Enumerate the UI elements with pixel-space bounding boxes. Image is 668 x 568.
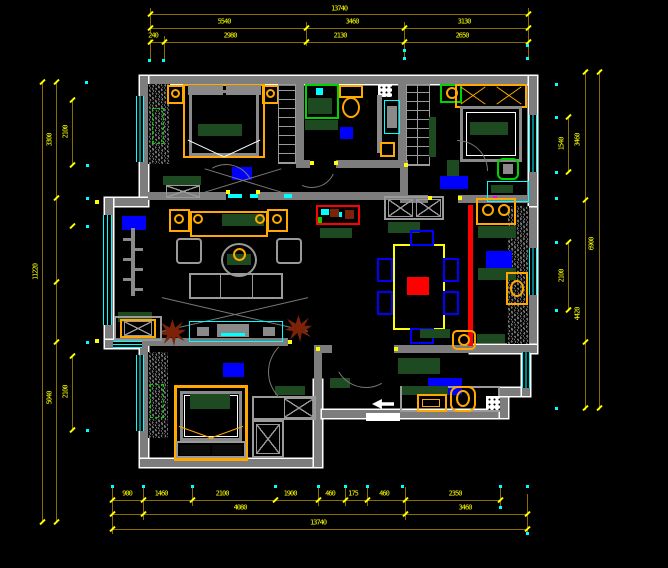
dining-chair — [377, 291, 393, 315]
dimension-line — [585, 70, 586, 410]
br1-bench-top — [163, 176, 201, 185]
door-hinge — [95, 339, 99, 343]
witness-dot — [142, 485, 145, 488]
witness-dot — [86, 197, 89, 200]
tv-speaker — [263, 327, 275, 336]
dimension-label: 3460 — [575, 133, 582, 148]
kitchen-counter — [478, 226, 516, 238]
witness-dot — [317, 485, 320, 488]
aquarium-rock — [345, 210, 354, 219]
dimension-label: 1460 — [154, 491, 169, 498]
door-hinge — [226, 190, 230, 194]
washer-x — [124, 321, 152, 336]
dimension-label: 900 — [121, 491, 133, 498]
witness-dot — [86, 164, 89, 167]
dining-table-runner — [407, 277, 429, 295]
footboard-panel — [180, 445, 210, 455]
witness-dot — [86, 341, 89, 344]
coffee-table-flower — [233, 248, 246, 261]
aquarium-plant — [318, 217, 322, 223]
br2-wardrobe-rail — [417, 84, 418, 166]
desk-paper — [486, 396, 500, 410]
dimension-label: 11220 — [33, 263, 40, 281]
dimension-label: 3460 — [458, 505, 473, 512]
door-hinge — [95, 200, 99, 204]
witness-dot — [162, 59, 165, 62]
plant-stand-arm — [123, 238, 132, 241]
dimension-line — [599, 70, 600, 410]
dimension-tick — [53, 519, 59, 525]
bath-counter — [305, 120, 338, 130]
console-divider — [252, 273, 253, 299]
dimension-label: 1540 — [559, 137, 566, 152]
witness-dot — [526, 57, 529, 60]
plant-stand-arm — [134, 248, 143, 251]
dimension-tick — [69, 427, 75, 433]
dimension-line — [56, 82, 57, 522]
sofa-arm-curl — [255, 214, 265, 224]
witness-dot — [526, 44, 529, 47]
dimension-tick — [69, 162, 75, 168]
dimension-line — [568, 242, 569, 310]
witness-dot — [555, 309, 558, 312]
witness-dot — [555, 171, 558, 174]
dining-chair — [410, 230, 434, 246]
dimension-line — [528, 8, 529, 60]
dimension-label: 5040 — [47, 391, 54, 406]
window-br1-west — [136, 96, 144, 162]
scale-bar — [366, 413, 400, 421]
witness-dot — [403, 57, 406, 60]
dimension-line — [150, 14, 528, 15]
table-lamp — [174, 214, 184, 224]
witness-dot — [86, 429, 89, 432]
dimension-line — [72, 356, 73, 430]
br2-bed-canopy — [455, 84, 527, 108]
cabinet-door-x — [388, 199, 413, 217]
pointer-icon — [372, 399, 394, 409]
hall-cabinet — [380, 142, 395, 157]
dimension-line — [150, 28, 528, 29]
dimension-label: 460 — [324, 491, 336, 498]
br1-lamp-right — [266, 89, 275, 98]
door-hinge — [394, 347, 398, 351]
aquarium-rock — [330, 209, 339, 217]
door-hinge — [288, 340, 292, 344]
plant-stand-arm — [134, 268, 143, 271]
dimension-tick — [596, 405, 602, 411]
dimension-tick — [565, 307, 571, 313]
plant-stand-arm — [123, 258, 132, 261]
dimension-label: 4420 — [575, 307, 582, 322]
kitchen-shelf — [477, 334, 505, 343]
wall-bath-south-east — [336, 160, 406, 168]
witness-dot — [555, 241, 558, 244]
dimension-tick — [39, 519, 45, 525]
dimension-label: 3460 — [345, 19, 360, 26]
br1-headboard-right — [226, 85, 261, 95]
dimension-line — [150, 42, 528, 43]
sofa-arm-curl — [193, 214, 203, 224]
br1-decor-squiggle — [152, 108, 164, 144]
br1-lamp-left — [171, 89, 180, 98]
witness-dot — [148, 59, 151, 62]
dimension-tick — [582, 405, 588, 411]
threshold — [284, 194, 292, 198]
br3-pillow — [190, 394, 230, 409]
stool-seat — [458, 334, 470, 346]
witness-dot — [555, 116, 558, 119]
door-swing — [268, 336, 340, 408]
door-hinge — [256, 190, 260, 194]
br3-rug — [223, 363, 244, 377]
witness-dot — [555, 83, 558, 86]
witness-dot — [403, 49, 406, 52]
br1-bench — [166, 185, 200, 198]
window-kitchen-east — [529, 248, 537, 295]
witness-dot — [111, 485, 114, 488]
dimension-label: 2130 — [333, 33, 348, 40]
br1-headboard-left — [188, 85, 223, 95]
dimension-label: 2100 — [559, 269, 566, 284]
burner — [498, 204, 510, 216]
window-balcony-south — [113, 341, 142, 348]
dimension-label: 5540 — [217, 19, 232, 26]
witness-dot — [555, 407, 558, 410]
dimension-label: 175 — [347, 491, 359, 498]
witness-dot — [366, 485, 369, 488]
dimension-tick — [565, 169, 571, 175]
tv-speaker — [197, 327, 209, 336]
window-study-east — [522, 352, 530, 388]
window-br2-east — [529, 115, 537, 172]
plant-stand-arm — [123, 278, 132, 281]
witness-dot — [526, 485, 529, 488]
dimension-line — [42, 82, 43, 522]
witness-dot — [86, 225, 89, 228]
aquarium-water — [321, 209, 329, 215]
dimension-label: 2980 — [223, 33, 238, 40]
window-bay-west — [103, 215, 112, 325]
witness-dot — [274, 485, 277, 488]
armchair-right — [276, 238, 302, 264]
dimension-label: 2100 — [63, 125, 70, 140]
br2-chair-seat — [503, 164, 513, 174]
dining-chair — [443, 258, 459, 282]
kitchen-rug — [486, 251, 512, 268]
door-hinge — [404, 163, 408, 167]
dimension-label: 3300 — [47, 133, 54, 148]
door-hinge — [428, 196, 432, 200]
br3-decor-squiggle — [150, 384, 164, 418]
dining-chair — [377, 258, 393, 282]
sink-basin — [510, 280, 524, 297]
witness-dot — [85, 81, 88, 84]
dimension-label: 13740 — [330, 6, 348, 13]
window-br3-west — [136, 355, 144, 431]
plant-stand-arm — [134, 288, 143, 291]
desk-drawer-inner — [422, 399, 440, 407]
witness-dot — [401, 485, 404, 488]
door-hinge — [316, 347, 320, 351]
wall-north — [140, 76, 537, 84]
dimension-line — [568, 117, 569, 172]
dimension-label: 4080 — [233, 505, 248, 512]
dimension-tick — [69, 223, 75, 229]
dimension-label: 460 — [378, 491, 390, 498]
console-divider — [220, 273, 221, 299]
kitchen-sliding-door — [468, 205, 473, 346]
dimension-label: 3130 — [457, 19, 472, 26]
br1-pillow — [198, 124, 242, 136]
witness-dot — [499, 485, 502, 488]
br2-wardrobe — [406, 84, 430, 166]
console-table — [189, 273, 283, 299]
door-hinge — [310, 161, 314, 165]
footboard-panel — [212, 445, 242, 455]
dimension-label: 13740 — [309, 520, 327, 527]
washbasin-bowl — [387, 106, 397, 128]
dimension-label: 240 — [147, 33, 159, 40]
kitchen-shelf — [420, 329, 450, 338]
shower-bench — [308, 98, 332, 114]
dimension-label: 2650 — [455, 33, 470, 40]
witness-dot — [499, 506, 502, 509]
wardrobe-x — [256, 424, 280, 454]
dimension-label: 1900 — [283, 491, 298, 498]
armchair-left — [176, 238, 202, 264]
burner — [482, 204, 494, 216]
bath-mat — [340, 127, 353, 139]
witness-dot — [191, 485, 194, 488]
dining-chair — [443, 291, 459, 315]
shower-head — [316, 88, 323, 95]
br2-pillow — [470, 122, 508, 135]
toilet-bowl — [342, 97, 360, 118]
dimension-line — [72, 100, 73, 165]
dimension-label: 2100 — [215, 491, 230, 498]
study-chair-back — [456, 390, 470, 407]
br2-desk-items — [491, 185, 513, 193]
table-lamp — [272, 214, 282, 224]
tv-screen — [221, 333, 245, 336]
dimension-line — [112, 500, 500, 501]
cabinet-door-x — [416, 199, 441, 217]
door-hinge — [334, 161, 338, 165]
witness-dot — [344, 485, 347, 488]
witness-dot — [555, 197, 558, 200]
dimension-label: 6900 — [589, 237, 596, 252]
witness-dot — [526, 532, 529, 535]
dimension-line — [112, 514, 527, 515]
dimension-line — [112, 529, 527, 530]
door-hinge — [458, 196, 462, 200]
cad-canvas[interactable]: 1374055403460313024029802130265033002100… — [0, 0, 668, 568]
study-shelf — [398, 358, 440, 374]
dimension-label: 2100 — [63, 385, 70, 400]
shoe-bench — [320, 228, 352, 238]
dimension-label: 2350 — [448, 491, 463, 498]
